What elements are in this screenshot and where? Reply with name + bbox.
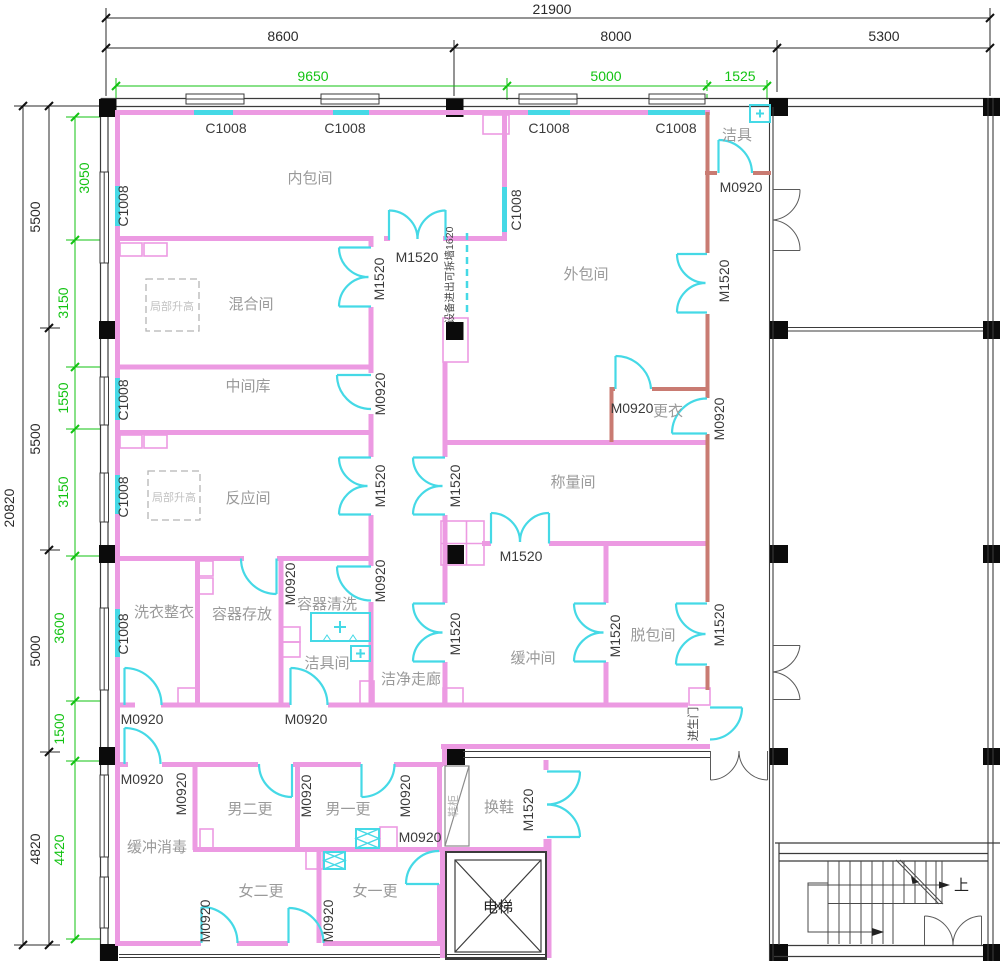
svg-text:进生门: 进生门 bbox=[686, 707, 700, 742]
svg-text:1500: 1500 bbox=[51, 713, 67, 744]
svg-text:1550: 1550 bbox=[55, 382, 71, 413]
svg-text:洁具间: 洁具间 bbox=[304, 655, 349, 672]
svg-text:5000: 5000 bbox=[590, 68, 621, 84]
svg-text:M1520: M1520 bbox=[607, 614, 623, 657]
svg-text:C1008: C1008 bbox=[115, 476, 131, 517]
svg-text:M1520: M1520 bbox=[447, 612, 463, 655]
svg-text:C1008: C1008 bbox=[508, 189, 524, 230]
svg-text:M1520: M1520 bbox=[711, 603, 727, 646]
svg-text:M0920: M0920 bbox=[121, 711, 164, 727]
svg-text:洁具: 洁具 bbox=[722, 127, 752, 144]
svg-text:换鞋: 换鞋 bbox=[484, 799, 514, 816]
svg-text:脱包间: 脱包间 bbox=[630, 627, 675, 644]
svg-text:反应间: 反应间 bbox=[225, 489, 270, 507]
svg-text:M0920: M0920 bbox=[298, 774, 314, 817]
svg-text:3150: 3150 bbox=[55, 287, 71, 318]
svg-text:鞋柜: 鞋柜 bbox=[446, 795, 460, 817]
svg-text:5000: 5000 bbox=[27, 635, 43, 666]
svg-text:C1008: C1008 bbox=[115, 613, 131, 654]
svg-text:中间库: 中间库 bbox=[225, 378, 270, 395]
svg-text:缓冲间: 缓冲间 bbox=[510, 650, 555, 667]
svg-text:电梯: 电梯 bbox=[483, 899, 513, 916]
svg-text:局部升高: 局部升高 bbox=[150, 299, 194, 313]
svg-text:M1520: M1520 bbox=[396, 249, 439, 265]
svg-text:9650: 9650 bbox=[297, 68, 328, 84]
svg-text:M0920: M0920 bbox=[397, 774, 413, 817]
svg-text:M1520: M1520 bbox=[520, 788, 536, 831]
svg-text:女二更: 女二更 bbox=[238, 882, 283, 900]
svg-text:男二更: 男二更 bbox=[227, 801, 272, 818]
svg-text:M0920: M0920 bbox=[282, 562, 298, 605]
svg-text:M1520: M1520 bbox=[372, 464, 388, 507]
svg-text:男一更: 男一更 bbox=[325, 801, 370, 818]
svg-text:C1008: C1008 bbox=[205, 120, 246, 136]
svg-text:M1520: M1520 bbox=[500, 548, 543, 564]
svg-text:局部升高: 局部升高 bbox=[152, 490, 196, 504]
svg-text:20820: 20820 bbox=[1, 488, 17, 527]
svg-text:M0920: M0920 bbox=[173, 772, 189, 815]
svg-text:缓冲消毒: 缓冲消毒 bbox=[127, 839, 187, 856]
svg-text:5500: 5500 bbox=[27, 423, 43, 454]
svg-text:M0920: M0920 bbox=[720, 179, 763, 195]
svg-text:M1520: M1520 bbox=[447, 464, 463, 507]
svg-text:3150: 3150 bbox=[55, 476, 71, 507]
svg-text:容器清洗: 容器清洗 bbox=[297, 596, 357, 613]
svg-text:M0920: M0920 bbox=[320, 899, 336, 942]
svg-text:4820: 4820 bbox=[27, 833, 43, 864]
svg-text:3600: 3600 bbox=[51, 612, 67, 643]
svg-text:M0920: M0920 bbox=[372, 559, 388, 602]
svg-text:4420: 4420 bbox=[51, 834, 67, 865]
svg-text:内包间: 内包间 bbox=[287, 170, 332, 187]
svg-text:称量间: 称量间 bbox=[550, 474, 595, 491]
svg-text:上: 上 bbox=[954, 877, 969, 894]
svg-text:M0920: M0920 bbox=[197, 899, 213, 942]
svg-text:M0920: M0920 bbox=[611, 400, 654, 416]
svg-text:M0920: M0920 bbox=[121, 771, 164, 787]
svg-text:洁净走廊: 洁净走廊 bbox=[381, 671, 441, 688]
svg-text:洗衣整衣: 洗衣整衣 bbox=[134, 604, 194, 621]
svg-text:C1008: C1008 bbox=[115, 185, 131, 226]
svg-text:C1008: C1008 bbox=[115, 379, 131, 420]
svg-text:M0920: M0920 bbox=[399, 829, 442, 845]
svg-text:M1520: M1520 bbox=[716, 259, 732, 302]
svg-text:8600: 8600 bbox=[267, 28, 298, 44]
svg-text:容器存放: 容器存放 bbox=[212, 606, 272, 623]
svg-text:更衣: 更衣 bbox=[653, 403, 683, 420]
svg-text:3050: 3050 bbox=[76, 162, 92, 193]
svg-text:C1008: C1008 bbox=[324, 120, 365, 136]
svg-text:M0920: M0920 bbox=[285, 711, 328, 727]
svg-text:女一更: 女一更 bbox=[352, 882, 397, 900]
svg-text:C1008: C1008 bbox=[655, 120, 696, 136]
svg-text:8000: 8000 bbox=[600, 28, 631, 44]
svg-text:5300: 5300 bbox=[868, 28, 899, 44]
svg-text:M0920: M0920 bbox=[711, 397, 727, 440]
svg-text:外包间: 外包间 bbox=[563, 266, 608, 283]
svg-text:5500: 5500 bbox=[27, 201, 43, 232]
svg-text:混合间: 混合间 bbox=[228, 296, 273, 313]
svg-text:M1520: M1520 bbox=[371, 257, 387, 300]
svg-text:M0920: M0920 bbox=[372, 372, 388, 415]
svg-text:C1008: C1008 bbox=[528, 120, 569, 136]
svg-text:设备进出可拆墙1620: 设备进出可拆墙1620 bbox=[443, 226, 456, 323]
svg-text:21900: 21900 bbox=[533, 1, 572, 17]
svg-text:1525: 1525 bbox=[724, 68, 755, 84]
